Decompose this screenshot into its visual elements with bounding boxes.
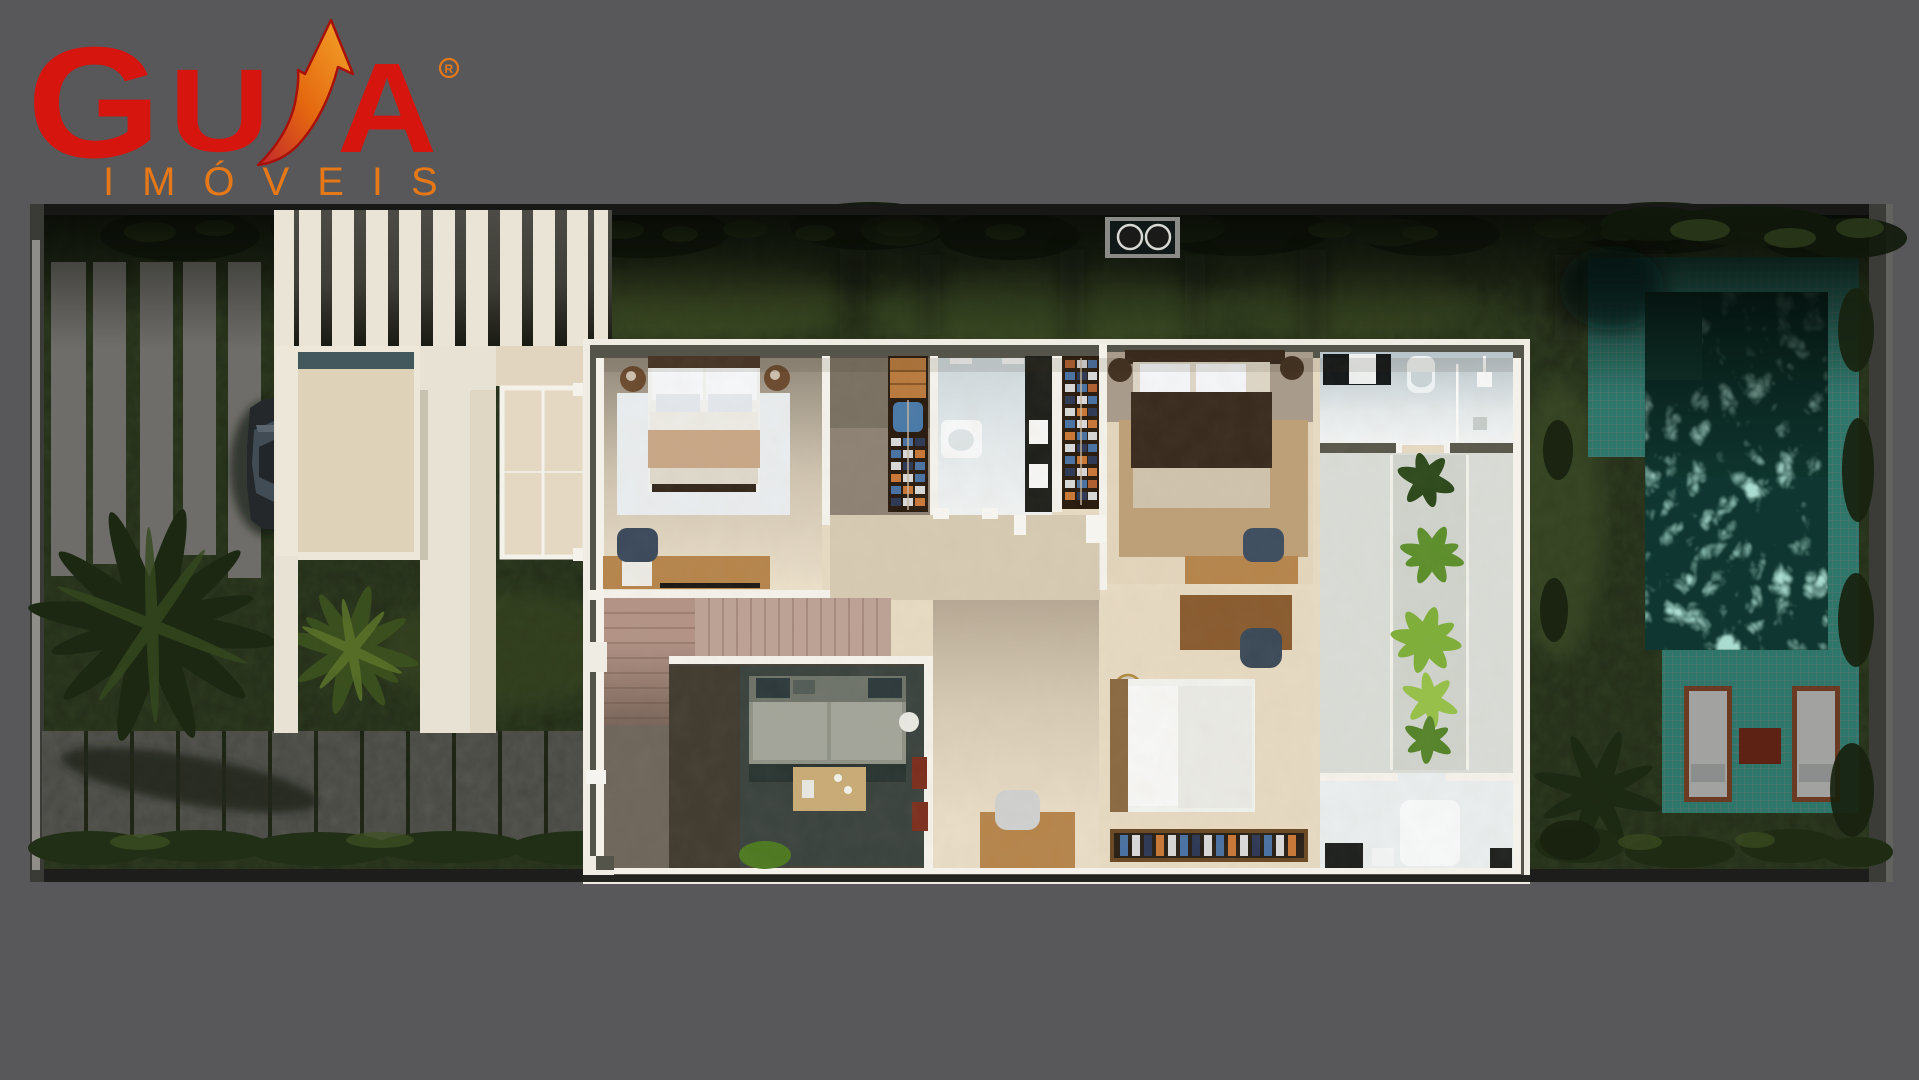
svg-text:R: R bbox=[445, 62, 454, 76]
svg-text:U: U bbox=[169, 45, 270, 177]
svg-text:IMÓVEIS: IMÓVEIS bbox=[103, 159, 466, 204]
svg-text:A: A bbox=[337, 37, 437, 180]
